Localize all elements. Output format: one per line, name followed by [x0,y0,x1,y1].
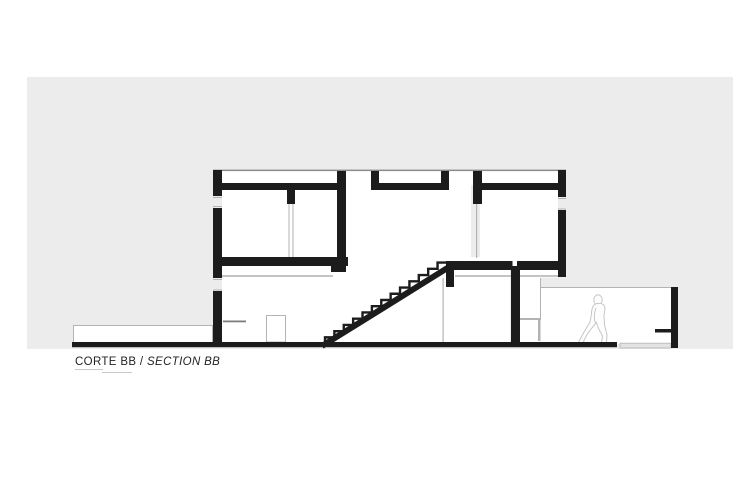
porch-roof-line [541,287,671,288]
roof-line [213,170,566,172]
right-exterior-wall [558,170,566,277]
ceiling-slab-left [222,183,346,190]
slab-edge-beam [331,266,346,272]
slab-joint [513,261,518,266]
title-separator: / [136,356,147,368]
title-underline-2 [102,372,132,373]
ground-floor-wall [511,268,520,343]
ceiling-line-right [455,276,558,277]
left-exterior-wall [213,170,222,343]
stair-railing-line [443,278,444,342]
section-drawing-svg [0,0,749,488]
title-primary: CORTE BB [75,356,136,368]
porch-handrail [655,329,672,333]
title-secondary: SECTION BB [147,356,220,368]
entry-step [620,343,671,348]
drawing-sheet: CORTE BB / SECTION BB [0,0,749,488]
upper-window-left-glazing [213,197,222,198]
right-window-glazing [558,209,566,210]
right-window-glazing [558,198,566,199]
planter-wall [74,326,213,343]
title-underline-1 [75,369,103,370]
door-opening-line [293,204,294,257]
ceiling-slab-right [482,183,558,190]
porch-roof-fascia [541,278,559,288]
upper-window-left-glazing [213,206,222,207]
porch-wall [671,287,678,348]
door-opening-line [476,204,477,258]
ground-line [72,342,617,347]
door-outline [267,316,286,343]
lower-window-left-glazing [213,290,222,291]
lower-window-left-glazing [213,279,222,280]
door-opening-line [289,204,290,257]
drawing-title: CORTE BB / SECTION BB [75,356,220,368]
wall-handrail [223,321,246,323]
ceiling-line-left [222,276,333,277]
stairwell-wall [337,171,346,260]
